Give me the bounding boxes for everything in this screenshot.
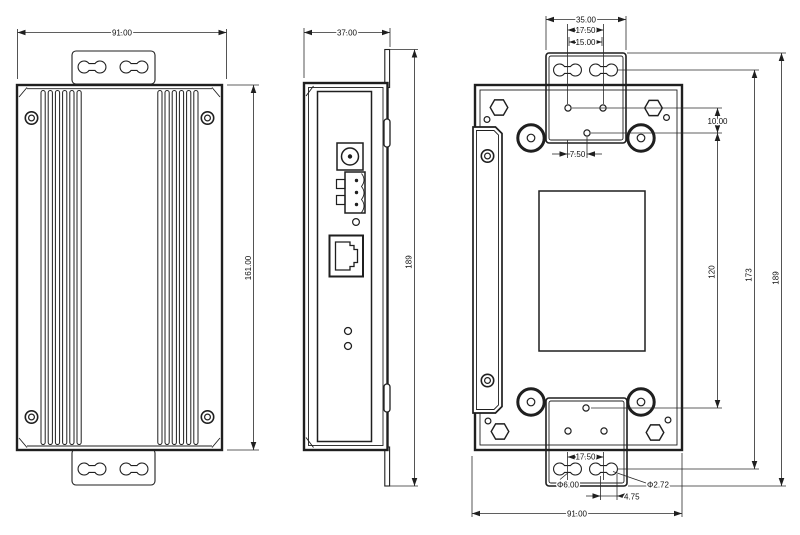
front-view: 91.00 161.00 <box>17 29 259 486</box>
dim-label: 37.00 <box>337 29 358 38</box>
drawing-canvas: 91.00 161.00 <box>0 0 800 535</box>
dim-label: 17.50 <box>575 453 596 462</box>
rubber-foot <box>518 389 544 415</box>
rubber-foot <box>518 125 544 151</box>
rubber-foot <box>628 125 654 151</box>
dim-label: 120 <box>708 265 717 279</box>
dim-label: 17.50 <box>575 26 596 35</box>
dim-side-depth: 37.00 <box>304 28 390 78</box>
dim-label: 15.00 <box>575 38 596 47</box>
dim-label: Φ6.00 <box>557 481 580 490</box>
dim-label: 10.00 <box>707 117 728 126</box>
dim-label: 91.00 <box>112 29 133 38</box>
mechanical-drawing: 91.00 161.00 <box>0 0 800 535</box>
top-mounting-bracket <box>72 51 155 84</box>
bracket-tab-bottom <box>385 447 390 486</box>
side-latch <box>384 119 390 147</box>
dim-side-height: 189 <box>390 50 418 487</box>
dim-label: 91.00 <box>567 510 588 519</box>
dim-bottom-slot-spacing: 17.50 <box>568 453 604 462</box>
dim-label: Φ2.72 <box>647 481 670 490</box>
dim-top-slot-spacing: 17.50 <box>568 26 604 35</box>
dim-top-hole-spacing: 15.00 <box>569 37 602 47</box>
dim-label: 189 <box>405 255 414 269</box>
dim-label: 189 <box>772 271 781 285</box>
bottom-mounting-bracket <box>72 449 155 485</box>
dim-label: 7.50 <box>570 150 586 159</box>
dim-label: 173 <box>745 268 754 282</box>
dim-label: 4.75 <box>624 493 640 502</box>
dim-label: 161.00 <box>244 255 253 280</box>
din-rail-clip <box>473 127 502 413</box>
enclosure-body-side <box>304 83 388 450</box>
dim-label: 35.00 <box>576 16 597 25</box>
rubber-foot <box>628 389 654 415</box>
side-view: 37.00 189 <box>304 28 418 486</box>
dim-front-height: 161.00 <box>227 85 259 450</box>
side-latch <box>384 384 390 412</box>
back-view: 35.00 17.50 15.00 10.00 7.50 <box>472 16 786 519</box>
